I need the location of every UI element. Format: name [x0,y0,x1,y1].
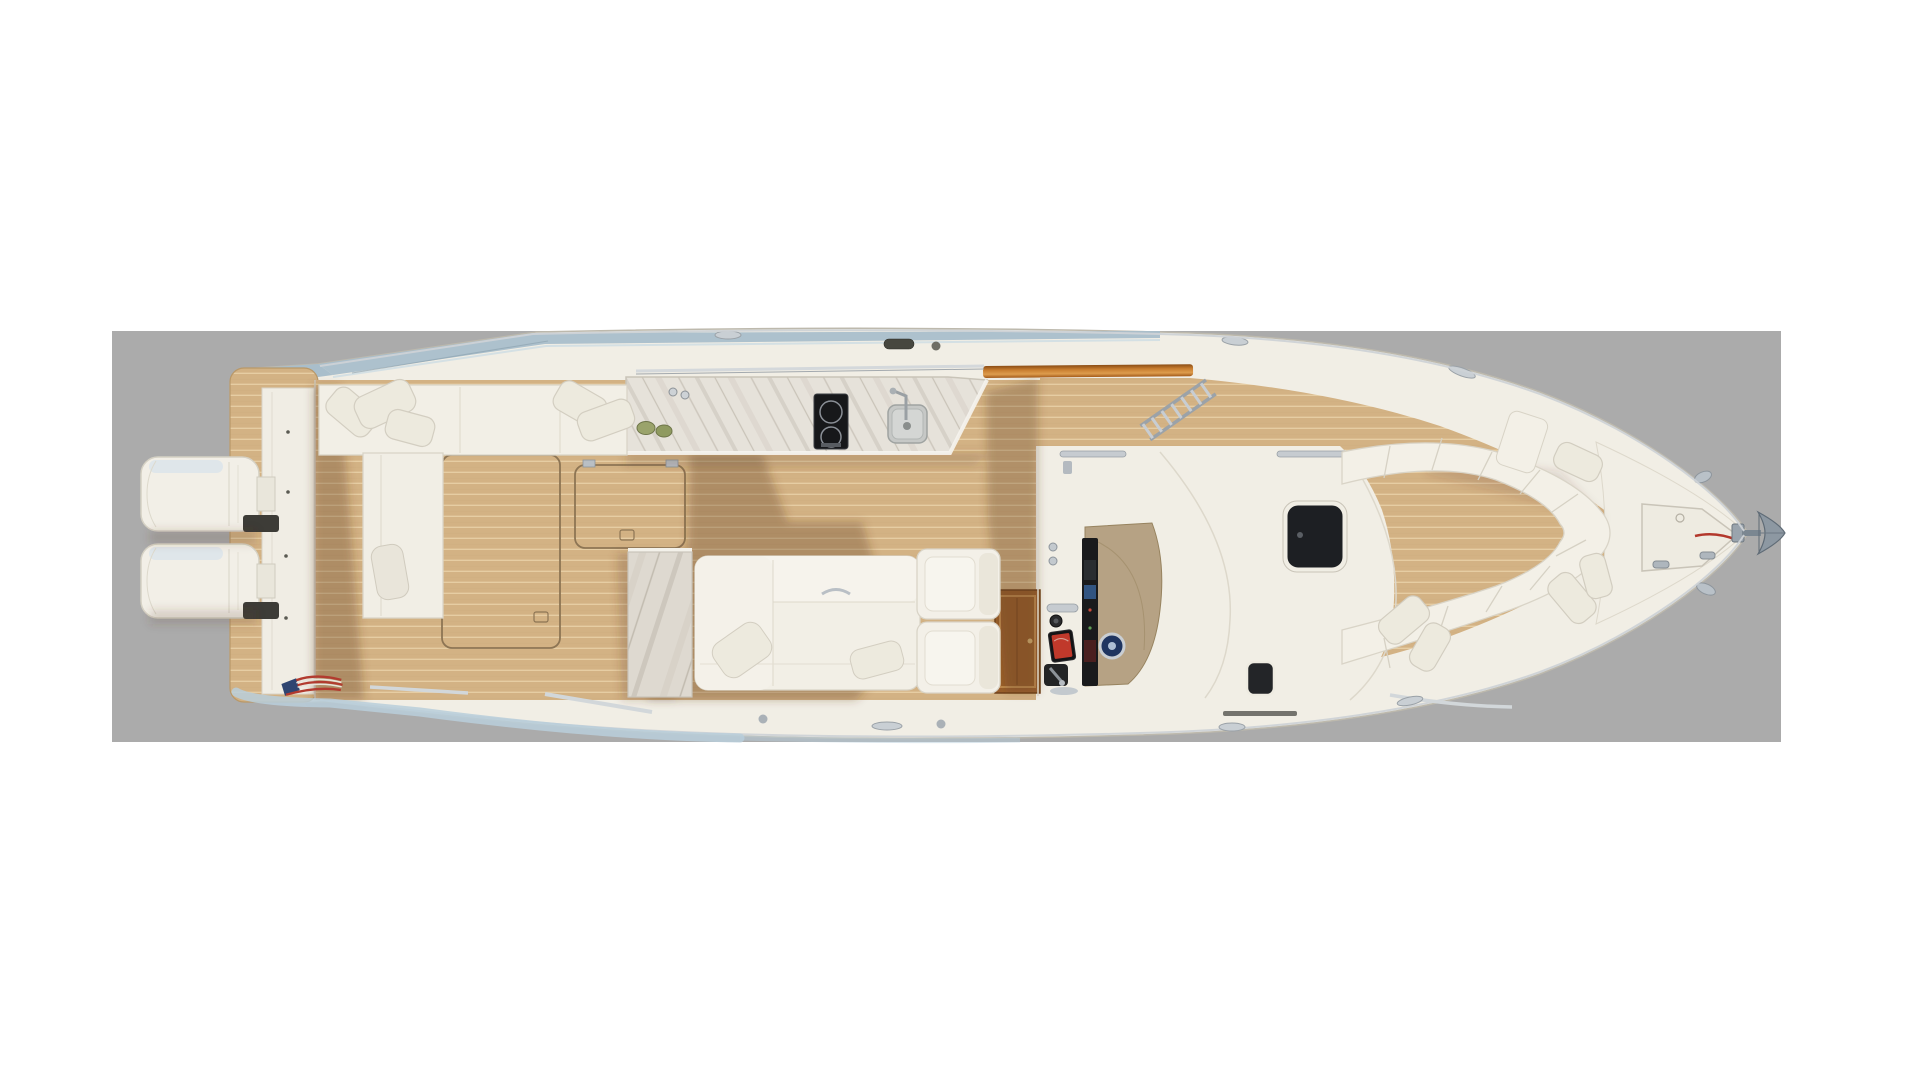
deck-fitting [759,715,768,724]
vent-icon [1049,557,1057,565]
vent-icon [1049,543,1057,551]
galley [626,377,987,453]
decor-bowl [637,422,655,435]
cleat-icon [1653,561,1669,568]
hatch-hinge [583,460,595,467]
cleat-icon [1700,552,1715,559]
deck-fitting [937,720,946,729]
transom-settee [363,453,443,618]
hull-slot [1223,711,1297,716]
cockpit-lounge [695,556,920,690]
gunwale-teak-cap [983,364,1193,378]
waterline-band-faint [740,738,1020,741]
red-screen-device [1048,629,1076,662]
hinge-bar [1060,451,1126,457]
cooktop-controls [821,443,841,447]
skylight-glass [1286,504,1344,569]
galley-counter [626,377,987,453]
cleat-icon [872,722,902,730]
cooktop [814,394,848,449]
cleat-icon [884,339,914,349]
soap-dispenser-icon [669,388,677,396]
cleat-icon [1219,723,1245,731]
door-latch [1063,461,1072,474]
engine-starboard [141,544,279,619]
port-bench [319,376,637,455]
porthole-glass [1247,662,1274,695]
wetbar-cabinet [628,552,692,697]
cleat-icon [715,331,741,339]
deck-fitting [932,342,941,351]
engine-port [141,457,279,532]
decor-bowl [656,425,672,437]
transom-module [262,388,314,694]
render-page [0,0,1920,1080]
console-handle [1047,604,1078,612]
hinge-bar [1277,451,1347,457]
soap-dispenser-icon [681,391,689,399]
helm-base [1050,687,1078,695]
